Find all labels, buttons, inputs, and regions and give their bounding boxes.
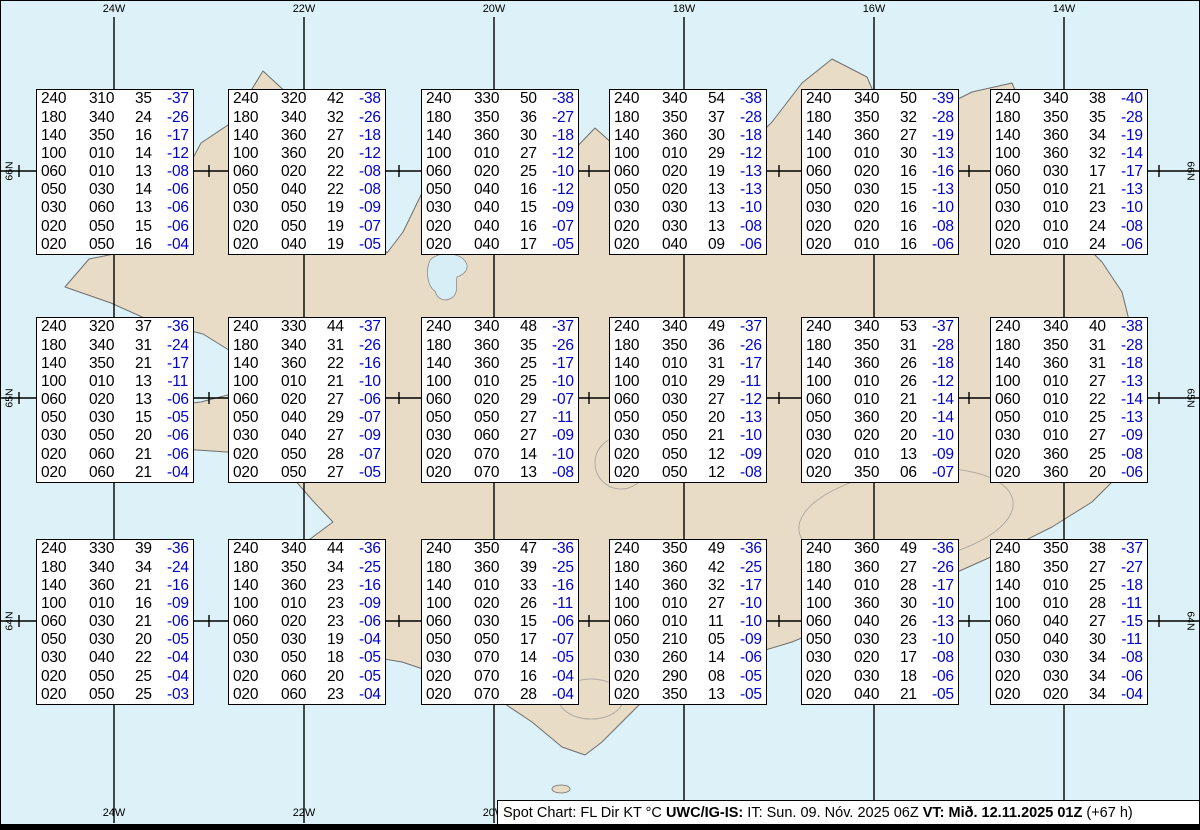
fl-value: 140 — [426, 127, 474, 145]
kt-value: 16 — [135, 127, 167, 145]
spot-row: 02002034-04 — [995, 686, 1142, 704]
dir-value: 010 — [662, 355, 708, 373]
temp-value: -04 — [167, 649, 189, 667]
fl-value: 180 — [806, 559, 854, 577]
kt-value: 27 — [708, 391, 740, 409]
lon-label-bottom: 22W — [293, 807, 316, 819]
fl-value: 180 — [614, 337, 662, 355]
fl-value: 050 — [41, 409, 89, 427]
spot-row: 06004026-13 — [806, 613, 953, 631]
temp-value: -06 — [552, 613, 574, 631]
spot-row: 06003017-17 — [995, 163, 1142, 181]
spot-row: 05003015-05 — [41, 409, 188, 427]
kt-value: 39 — [135, 540, 167, 558]
kt-value: 48 — [520, 318, 552, 336]
temp-value: -17 — [167, 127, 189, 145]
temp-value: -11 — [552, 409, 573, 427]
spot-row: 02036020-06 — [995, 464, 1142, 482]
temp-value: -12 — [552, 145, 574, 163]
kt-value: 26 — [520, 595, 552, 613]
temp-value: -06 — [167, 199, 189, 217]
kt-value: 44 — [327, 318, 359, 336]
dir-value: 360 — [281, 145, 327, 163]
spot-row: 10001028-11 — [995, 595, 1142, 613]
fl-value: 030 — [995, 649, 1043, 667]
kt-value: 27 — [520, 427, 552, 445]
temp-value: -07 — [552, 218, 574, 236]
kt-value: 27 — [1089, 373, 1121, 391]
spot-row: 03005020-06 — [41, 427, 188, 445]
fl-value: 050 — [41, 631, 89, 649]
spot-box-r2-c3: 24034048-3718036035-2614036025-171000102… — [421, 317, 579, 483]
fl-value: 020 — [426, 686, 474, 704]
spot-row: 18036035-26 — [426, 337, 573, 355]
temp-value: -06 — [167, 613, 189, 631]
fl-value: 060 — [614, 163, 662, 181]
kt-value: 13 — [135, 163, 167, 181]
spot-row: 03003034-08 — [995, 649, 1142, 667]
temp-value: -13 — [932, 145, 954, 163]
kt-value: 31 — [900, 337, 932, 355]
spot-row: 06003021-06 — [41, 613, 188, 631]
kt-value: 27 — [520, 145, 552, 163]
dir-value: 310 — [89, 90, 135, 108]
spot-box-r2-c2: 24033044-3718034031-2614036022-161000102… — [228, 317, 386, 483]
spot-row: 03005018-05 — [233, 649, 380, 667]
kt-value: 32 — [1089, 145, 1121, 163]
fl-value: 100 — [41, 145, 89, 163]
spot-row: 02001024-08 — [995, 218, 1142, 236]
dir-value: 010 — [281, 595, 327, 613]
fl-value: 020 — [426, 446, 474, 464]
dir-value: 340 — [89, 559, 135, 577]
kt-value: 15 — [520, 613, 552, 631]
fl-value: 020 — [806, 446, 854, 464]
temp-value: -10 — [740, 613, 762, 631]
dir-value: 010 — [854, 373, 900, 391]
fl-value: 020 — [806, 464, 854, 482]
dir-value: 350 — [854, 337, 900, 355]
temp-value: -38 — [552, 90, 574, 108]
spot-row: 02002016-08 — [806, 218, 953, 236]
lat-label-left: 64N — [5, 611, 16, 630]
spot-row: 24034054-38 — [614, 90, 761, 108]
fl-value: 240 — [806, 540, 854, 558]
temp-value: -04 — [167, 236, 189, 254]
kt-value: 17 — [520, 236, 552, 254]
temp-value: -07 — [552, 631, 574, 649]
kt-value: 34 — [1089, 649, 1121, 667]
dir-value: 030 — [854, 181, 900, 199]
spot-row: 03004022-04 — [41, 649, 188, 667]
fl-value: 180 — [614, 109, 662, 127]
dir-value: 010 — [1043, 181, 1089, 199]
dir-value: 340 — [854, 90, 900, 108]
dir-value: 360 — [854, 540, 900, 558]
dir-value: 050 — [662, 409, 708, 427]
kt-value: 30 — [900, 595, 932, 613]
spot-row: 02001024-06 — [995, 236, 1142, 254]
dir-value: 040 — [281, 181, 327, 199]
fl-value: 030 — [233, 199, 281, 217]
spot-row: 10036020-12 — [233, 145, 380, 163]
dir-value: 030 — [474, 613, 520, 631]
kt-value: 24 — [1089, 218, 1121, 236]
dir-value: 050 — [281, 199, 327, 217]
spot-row: 14001033-16 — [426, 577, 573, 595]
temp-value: -36 — [167, 540, 189, 558]
kt-value: 25 — [1089, 409, 1121, 427]
kt-value: 20 — [900, 409, 932, 427]
kt-value: 16 — [900, 163, 932, 181]
temp-value: -18 — [1121, 355, 1143, 373]
spot-row: 14001031-17 — [614, 355, 761, 373]
dir-value: 350 — [662, 686, 708, 704]
fl-value: 060 — [426, 163, 474, 181]
temp-value: -06 — [359, 391, 381, 409]
kt-value: 23 — [1089, 199, 1121, 217]
spot-row: 24034050-39 — [806, 90, 953, 108]
spot-row: 02007014-10 — [426, 446, 573, 464]
spot-row: 24034044-36 — [233, 540, 380, 558]
spot-row: 10001023-09 — [233, 595, 380, 613]
spot-row: 14036030-18 — [426, 127, 573, 145]
spot-row: 02006021-06 — [41, 446, 188, 464]
fl-value: 100 — [426, 145, 474, 163]
fl-value: 140 — [41, 355, 89, 373]
fl-value: 240 — [995, 318, 1043, 336]
kt-value: 29 — [708, 373, 740, 391]
fl-value: 030 — [233, 649, 281, 667]
fl-value: 180 — [233, 109, 281, 127]
dir-value: 340 — [854, 318, 900, 336]
spot-row: 03002020-10 — [806, 427, 953, 445]
kt-value: 16 — [135, 236, 167, 254]
spot-box-r1-c2: 24032042-3818034032-2614036027-181003602… — [228, 89, 386, 255]
temp-value: -10 — [359, 373, 381, 391]
temp-value: -10 — [740, 595, 762, 613]
dir-value: 020 — [854, 218, 900, 236]
spot-row: 02005015-06 — [41, 218, 188, 236]
spot-row: 18035034-25 — [233, 559, 380, 577]
dir-value: 350 — [1043, 540, 1089, 558]
spot-row: 10001026-12 — [806, 373, 953, 391]
spot-row: 24035038-37 — [995, 540, 1142, 558]
spot-row: 24035047-36 — [426, 540, 573, 558]
kt-value: 29 — [327, 409, 359, 427]
kt-value: 23 — [327, 595, 359, 613]
temp-value: -17 — [932, 577, 954, 595]
fl-value: 050 — [426, 631, 474, 649]
kt-value: 17 — [900, 649, 932, 667]
fl-value: 020 — [41, 464, 89, 482]
dir-value: 020 — [1043, 686, 1089, 704]
fl-value: 100 — [806, 373, 854, 391]
spot-row: 14001025-18 — [995, 577, 1142, 595]
fl-value: 020 — [426, 236, 474, 254]
kt-value: 27 — [1089, 559, 1121, 577]
kt-value: 20 — [708, 409, 740, 427]
fl-value: 180 — [426, 559, 474, 577]
temp-value: -05 — [359, 464, 381, 482]
fl-value: 180 — [806, 109, 854, 127]
spot-box-r2-c4: 24034049-3718035036-2614001031-171000102… — [609, 317, 767, 483]
temp-value: -10 — [552, 163, 574, 181]
fl-value: 060 — [806, 613, 854, 631]
spot-row: 02007028-04 — [426, 686, 573, 704]
spot-row: 24033044-37 — [233, 318, 380, 336]
temp-value: -11 — [167, 373, 188, 391]
fl-value: 140 — [614, 577, 662, 595]
temp-value: -06 — [932, 236, 954, 254]
spot-row: 06002022-08 — [233, 163, 380, 181]
kt-value: 14 — [520, 649, 552, 667]
temp-value: -09 — [552, 199, 574, 217]
dir-value: 330 — [89, 540, 135, 558]
dir-value: 010 — [1043, 373, 1089, 391]
fl-value: 100 — [614, 373, 662, 391]
kt-value: 44 — [327, 540, 359, 558]
kt-value: 31 — [1089, 355, 1121, 373]
fl-value: 060 — [41, 613, 89, 631]
dir-value: 320 — [89, 318, 135, 336]
temp-value: -26 — [932, 559, 954, 577]
spot-row: 02005025-03 — [41, 686, 188, 704]
dir-value: 060 — [281, 686, 327, 704]
fl-value: 050 — [995, 631, 1043, 649]
temp-value: -06 — [740, 649, 762, 667]
kt-value: 38 — [1089, 90, 1121, 108]
dir-value: 010 — [474, 577, 520, 595]
temp-value: -18 — [359, 127, 381, 145]
dir-value: 340 — [1043, 318, 1089, 336]
dir-value: 050 — [474, 631, 520, 649]
kt-value: 34 — [135, 559, 167, 577]
dir-value: 350 — [89, 127, 135, 145]
temp-value: -07 — [359, 218, 381, 236]
temp-value: -37 — [740, 318, 762, 336]
kt-value: 21 — [135, 613, 167, 631]
fl-value: 140 — [614, 355, 662, 373]
temp-value: -12 — [359, 145, 381, 163]
spot-row: 02007013-08 — [426, 464, 573, 482]
dir-value: 020 — [854, 649, 900, 667]
spot-row: 18034032-26 — [233, 109, 380, 127]
dir-value: 350 — [281, 559, 327, 577]
temp-value: -38 — [740, 90, 762, 108]
kt-value: 13 — [708, 199, 740, 217]
temp-value: -25 — [552, 559, 574, 577]
kt-value: 27 — [900, 559, 932, 577]
kt-value: 15 — [135, 409, 167, 427]
temp-value: -26 — [359, 337, 381, 355]
kt-value: 42 — [708, 559, 740, 577]
dir-value: 330 — [281, 318, 327, 336]
fl-value: 180 — [426, 109, 474, 127]
fl-value: 050 — [995, 181, 1043, 199]
fl-value: 020 — [995, 464, 1043, 482]
temp-value: -36 — [552, 540, 574, 558]
spot-row: 24034049-37 — [614, 318, 761, 336]
dir-value: 360 — [474, 355, 520, 373]
fl-value: 100 — [233, 595, 281, 613]
temp-value: -05 — [932, 686, 954, 704]
temp-value: -12 — [740, 391, 762, 409]
spot-row: 10036032-14 — [995, 145, 1142, 163]
spot-row: 10036030-10 — [806, 595, 953, 613]
fl-value: 060 — [995, 613, 1043, 631]
fl-value: 020 — [614, 218, 662, 236]
fl-value: 020 — [614, 446, 662, 464]
fl-value: 140 — [233, 577, 281, 595]
dir-value: 360 — [1043, 127, 1089, 145]
dir-value: 360 — [854, 559, 900, 577]
temp-value: -26 — [359, 109, 381, 127]
fl-value: 060 — [41, 163, 89, 181]
spot-row: 18034031-24 — [41, 337, 188, 355]
dir-value: 040 — [662, 236, 708, 254]
kt-value: 27 — [708, 595, 740, 613]
spot-row: 10001025-10 — [426, 373, 573, 391]
dir-value: 350 — [854, 109, 900, 127]
temp-value: -36 — [932, 540, 954, 558]
dir-value: 040 — [281, 409, 327, 427]
kt-value: 27 — [1089, 427, 1121, 445]
fl-value: 030 — [614, 427, 662, 445]
kt-value: 27 — [327, 427, 359, 445]
spot-row: 06002029-07 — [426, 391, 573, 409]
fl-value: 100 — [426, 373, 474, 391]
fl-value: 060 — [426, 613, 474, 631]
kt-value: 27 — [900, 127, 932, 145]
dir-value: 360 — [1043, 355, 1089, 373]
fl-value: 240 — [426, 540, 474, 558]
spot-row: 05004030-11 — [995, 631, 1142, 649]
spot-row: 14036022-16 — [233, 355, 380, 373]
fl-value: 050 — [806, 631, 854, 649]
temp-value: -24 — [167, 559, 189, 577]
dir-value: 010 — [662, 145, 708, 163]
temp-value: -36 — [740, 540, 762, 558]
spot-box-r3-c1: 24033039-3618034034-2414036021-161000101… — [36, 539, 194, 705]
dir-value: 060 — [89, 199, 135, 217]
dir-value: 010 — [854, 577, 900, 595]
temp-value: -36 — [167, 318, 189, 336]
kt-value: 25 — [1089, 446, 1121, 464]
dir-value: 010 — [854, 391, 900, 409]
fl-value: 050 — [233, 409, 281, 427]
spot-row: 18035031-28 — [806, 337, 953, 355]
temp-value: -16 — [359, 577, 381, 595]
kt-value: 16 — [900, 236, 932, 254]
spot-row: 06001022-14 — [995, 391, 1142, 409]
spot-row: 02005025-04 — [41, 668, 188, 686]
spot-row: 05003023-10 — [806, 631, 953, 649]
fl-value: 050 — [995, 409, 1043, 427]
temp-value: -11 — [740, 373, 761, 391]
fl-value: 140 — [806, 127, 854, 145]
temp-value: -11 — [552, 595, 573, 613]
kt-value: 32 — [900, 109, 932, 127]
fl-value: 020 — [806, 218, 854, 236]
fl-value: 020 — [233, 464, 281, 482]
kt-value: 36 — [520, 109, 552, 127]
kt-value: 29 — [708, 145, 740, 163]
temp-value: -14 — [1121, 145, 1143, 163]
temp-value: -07 — [359, 409, 381, 427]
spot-row: 02001013-09 — [806, 446, 953, 464]
kt-value: 15 — [520, 199, 552, 217]
fl-value: 050 — [806, 409, 854, 427]
temp-value: -09 — [167, 595, 189, 613]
temp-value: -17 — [167, 355, 189, 373]
temp-value: -05 — [740, 686, 762, 704]
kt-value: 21 — [1089, 181, 1121, 199]
kt-value: 14 — [708, 649, 740, 667]
kt-value: 17 — [1089, 163, 1121, 181]
fl-value: 050 — [41, 181, 89, 199]
spot-box-r2-c1: 24032037-3618034031-2414035021-171000101… — [36, 317, 194, 483]
fl-value: 100 — [995, 595, 1043, 613]
fl-value: 140 — [806, 577, 854, 595]
dir-value: 350 — [662, 540, 708, 558]
kt-value: 27 — [327, 464, 359, 482]
fl-value: 020 — [614, 686, 662, 704]
spot-row: 24031035-37 — [41, 90, 188, 108]
fl-value: 100 — [614, 595, 662, 613]
status-source: UWC/IG-IS: — [666, 805, 743, 821]
temp-value: -06 — [1121, 668, 1143, 686]
temp-value: -08 — [1121, 218, 1143, 236]
fl-value: 180 — [41, 109, 89, 127]
kt-value: 40 — [1089, 318, 1121, 336]
fl-value: 020 — [806, 668, 854, 686]
temp-value: -10 — [740, 199, 762, 217]
fl-value: 100 — [806, 145, 854, 163]
spot-row: 05036020-14 — [806, 409, 953, 427]
spot-row: 06004027-15 — [995, 613, 1142, 631]
dir-value: 030 — [662, 391, 708, 409]
kt-value: 20 — [900, 427, 932, 445]
temp-value: -11 — [1121, 631, 1142, 649]
temp-value: -14 — [932, 409, 954, 427]
kt-value: 24 — [1089, 236, 1121, 254]
kt-value: 27 — [327, 391, 359, 409]
spot-row: 05021005-09 — [614, 631, 761, 649]
temp-value: -13 — [932, 613, 954, 631]
status-legend: Spot Chart: FL Dir KT °C — [503, 805, 666, 821]
fl-value: 180 — [806, 337, 854, 355]
dir-value: 040 — [89, 649, 135, 667]
fl-value: 240 — [426, 90, 474, 108]
dir-value: 050 — [89, 218, 135, 236]
dir-value: 070 — [474, 668, 520, 686]
spot-row: 06001021-14 — [806, 391, 953, 409]
fl-value: 030 — [806, 199, 854, 217]
fl-value: 020 — [806, 686, 854, 704]
fl-value: 020 — [995, 686, 1043, 704]
temp-value: -18 — [552, 127, 574, 145]
dir-value: 010 — [474, 373, 520, 391]
temp-value: -05 — [359, 668, 381, 686]
spot-row: 10001030-13 — [806, 145, 953, 163]
fl-value: 050 — [806, 181, 854, 199]
temp-value: -17 — [740, 355, 762, 373]
dir-value: 010 — [1043, 577, 1089, 595]
temp-value: -09 — [740, 446, 762, 464]
dir-value: 050 — [281, 218, 327, 236]
fl-value: 140 — [233, 127, 281, 145]
